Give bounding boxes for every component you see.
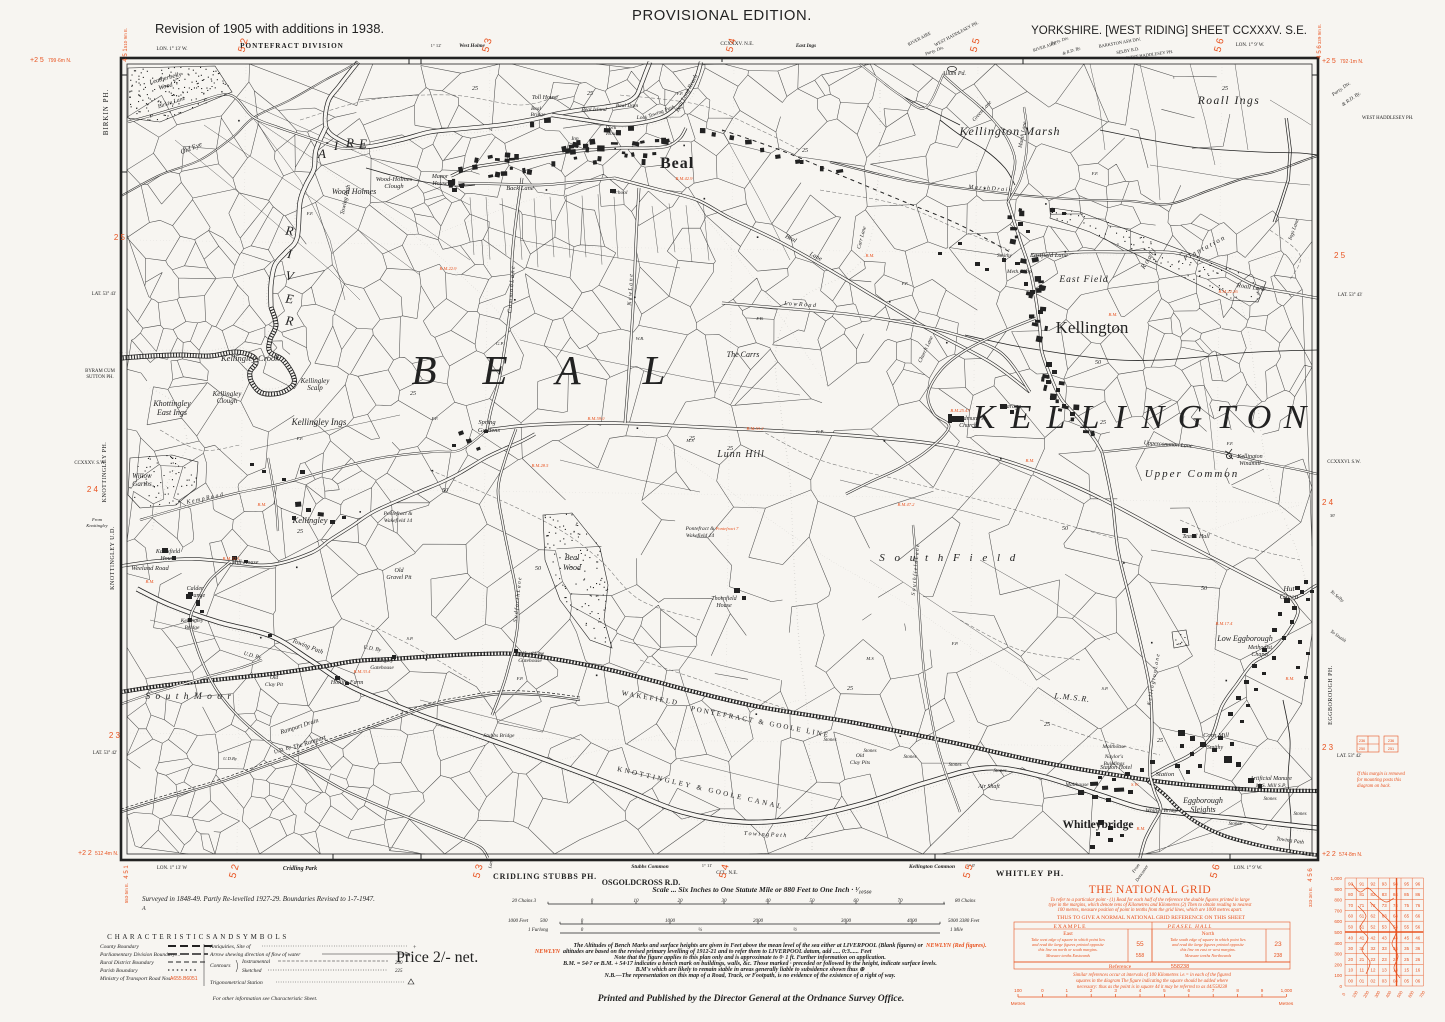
svg-text:Wakefield 14: Wakefield 14 xyxy=(686,532,715,539)
svg-text:1000 Feet: 1000 Feet xyxy=(508,919,529,924)
svg-text:B.M.17.4: B.M.17.4 xyxy=(1216,621,1234,626)
svg-text:75: 75 xyxy=(1404,903,1409,908)
svg-text:20 Chains 3: 20 Chains 3 xyxy=(512,899,537,904)
svg-text:Arrow shewing direction of flo: Arrow shewing direction of flow of water xyxy=(209,951,301,958)
svg-text:236: 236 xyxy=(1359,739,1365,743)
svg-text:LON. 1° 13' W: LON. 1° 13' W xyxy=(157,866,188,871)
svg-text:B.M.: B.M. xyxy=(1286,676,1295,681)
svg-text:East Ings: East Ings xyxy=(156,408,187,417)
svg-text:238: 238 xyxy=(1274,953,1283,959)
svg-text:N: N xyxy=(1283,399,1309,436)
svg-text:06: 06 xyxy=(1415,979,1420,984)
svg-text:LON. 1° 13' W.: LON. 1° 13' W. xyxy=(156,47,187,52)
svg-text:333·3m E.: 333·3m E. xyxy=(1308,887,1313,907)
svg-text:Wood: Wood xyxy=(563,563,582,572)
svg-text:Stones: Stones xyxy=(1228,822,1241,827)
svg-text:25: 25 xyxy=(587,91,593,97)
svg-text:558238: 558238 xyxy=(1171,964,1189,970)
svg-text:600: 600 xyxy=(1334,919,1342,924)
svg-text:+2 5: +2 5 xyxy=(1322,58,1336,65)
svg-text:Bridge: Bridge xyxy=(531,112,547,118)
svg-text:Sleights: Sleights xyxy=(1190,805,1215,814)
svg-text:Stubbs Common: Stubbs Common xyxy=(631,864,668,870)
svg-text:04: 04 xyxy=(1393,979,1398,984)
svg-text:diagram on back.: diagram on back. xyxy=(1357,784,1391,789)
svg-text:C H A R A C T E R I S T I C S: C H A R A C T E R I S T I C S A N D S Y … xyxy=(107,933,287,941)
svg-text:76: 76 xyxy=(1415,903,1420,908)
svg-text:3000: 3000 xyxy=(841,919,852,924)
svg-text:22: 22 xyxy=(1371,957,1376,962)
svg-text:F.F.: F.F. xyxy=(1226,441,1234,446)
svg-text:Clay Pits: Clay Pits xyxy=(850,760,870,766)
svg-text:85: 85 xyxy=(1404,892,1409,897)
svg-text:700: 700 xyxy=(1334,908,1342,913)
svg-text:S.P.: S.P. xyxy=(407,636,414,641)
svg-text:Khottingley: Khottingley xyxy=(152,399,191,408)
svg-text:L: L xyxy=(1046,399,1066,436)
svg-text:9: 9 xyxy=(1261,988,1264,993)
svg-text:Whitleybridge: Whitleybridge xyxy=(1063,819,1134,831)
svg-text:33: 33 xyxy=(1382,946,1387,951)
svg-text:25: 25 xyxy=(1404,957,1409,962)
svg-text:G: G xyxy=(1178,399,1203,436)
svg-text:+2 5: +2 5 xyxy=(30,57,44,64)
svg-text:Stones: Stones xyxy=(823,738,836,743)
svg-text:St. Edmund's: St. Edmund's xyxy=(952,416,984,422)
svg-text:00: 00 xyxy=(1348,979,1353,984)
svg-text:71: 71 xyxy=(1359,903,1364,908)
svg-text:Pontefract &: Pontefract & xyxy=(383,510,414,517)
svg-text:2: 2 xyxy=(1090,988,1093,993)
svg-text:for mounting posts this: for mounting posts this xyxy=(1357,778,1401,783)
svg-text:95: 95 xyxy=(1404,881,1409,886)
svg-text:13: 13 xyxy=(1382,968,1387,973)
svg-text:PROVISIONAL EDITION.: PROVISIONAL EDITION. xyxy=(632,8,812,24)
svg-text:Gatehouse: Gatehouse xyxy=(518,658,542,664)
svg-text:N: N xyxy=(1141,399,1167,436)
svg-text:M.S: M.S xyxy=(865,656,874,661)
svg-text:Lunn Hill: Lunn Hill xyxy=(716,449,765,460)
svg-text:Kellington: Kellington xyxy=(1056,318,1129,337)
svg-text:Church: Church xyxy=(959,423,977,429)
svg-text:50: 50 xyxy=(810,899,816,904)
svg-text:65: 65 xyxy=(1404,914,1409,919)
svg-text:56: 56 xyxy=(1415,925,1420,930)
svg-text:Vicarage: Vicarage xyxy=(999,404,1021,410)
svg-text:Sudforthlane: Sudforthlane xyxy=(516,650,545,657)
svg-text:2 3: 2 3 xyxy=(1322,743,1334,752)
svg-text:74: 74 xyxy=(1393,903,1398,908)
svg-text:Bridge: Bridge xyxy=(185,625,201,631)
svg-text:26: 26 xyxy=(1415,957,1420,962)
svg-text:F.F.: F.F. xyxy=(306,211,314,216)
svg-text:CCXXXV. S.W.: CCXXXV. S.W. xyxy=(74,461,105,466)
svg-text:Parish Boundary: Parish Boundary xyxy=(99,968,138,974)
svg-text:70: 70 xyxy=(898,899,904,904)
svg-text:I: I xyxy=(1113,399,1127,436)
svg-text:East Ings: East Ings xyxy=(795,43,816,49)
svg-text:Beal: Beal xyxy=(660,155,694,172)
svg-text:50: 50 xyxy=(1062,526,1068,532)
svg-text:BYRAM CUM: BYRAM CUM xyxy=(85,369,115,374)
svg-text:T: T xyxy=(1217,399,1238,436)
svg-text:B.M.: B.M. xyxy=(866,253,875,258)
svg-text:40: 40 xyxy=(766,899,772,904)
svg-text:Kellingley: Kellingley xyxy=(292,515,328,525)
svg-text:Air Shaft: Air Shaft xyxy=(977,783,1000,790)
svg-text:Stones: Stones xyxy=(993,769,1006,774)
svg-text:25: 25 xyxy=(1157,738,1163,744)
svg-text:B.M.33.4: B.M.33.4 xyxy=(354,669,372,674)
svg-text:2 3: 2 3 xyxy=(109,731,121,740)
svg-text:30: 30 xyxy=(1348,946,1353,951)
svg-text:Beal: Beal xyxy=(565,553,580,562)
svg-text:792·1m N.: 792·1m N. xyxy=(1340,59,1363,65)
svg-text:0: 0 xyxy=(1041,988,1044,993)
svg-text:Corn Mill: Corn Mill xyxy=(1203,732,1229,739)
svg-text:B.M.: B.M. xyxy=(1109,312,1118,317)
svg-text:86: 86 xyxy=(1415,892,1420,897)
svg-text:Kellingley Crook: Kellingley Crook xyxy=(220,353,279,363)
svg-text:LAT. 53° 43': LAT. 53° 43' xyxy=(92,292,117,297)
svg-text:S o u t h M o o r: S o u t h M o o r xyxy=(145,692,232,702)
svg-text:NEWLYN: NEWLYN xyxy=(534,949,561,955)
svg-text:Artificial Manure: Artificial Manure xyxy=(1249,775,1292,782)
svg-text:B.M.42.9: B.M.42.9 xyxy=(676,176,694,181)
svg-text:61: 61 xyxy=(1359,914,1364,919)
svg-text:Stones: Stones xyxy=(863,749,876,754)
svg-text:Willow: Willow xyxy=(132,472,152,480)
svg-text:Price 2/- net.: Price 2/- net. xyxy=(396,949,478,966)
svg-text:B.M.22.9: B.M.22.9 xyxy=(440,266,458,271)
svg-text:100 metres, measure position o: 100 metres, measure position of point in… xyxy=(1058,908,1243,913)
svg-text:East Field: East Field xyxy=(1058,275,1108,285)
svg-text:236: 236 xyxy=(1388,739,1394,743)
svg-text:41: 41 xyxy=(1359,935,1364,940)
svg-text:CRIDLING STUBBS PH.: CRIDLING STUBBS PH. xyxy=(493,872,597,881)
svg-text:23: 23 xyxy=(1274,941,1282,948)
svg-text:Metres: Metres xyxy=(1279,1001,1294,1007)
svg-text:10: 10 xyxy=(1348,968,1353,973)
svg-text:Measure tenths Northwards: Measure tenths Northwards xyxy=(1184,953,1232,958)
svg-text:Old: Old xyxy=(270,675,279,681)
svg-text:½: ½ xyxy=(793,928,797,933)
svg-text:Revision of 1905 with addition: Revision of 1905 with additions in 1938. xyxy=(155,21,384,36)
svg-text:U.D.By: U.D.By xyxy=(223,756,238,761)
svg-text:Roall Ings: Roall Ings xyxy=(1197,95,1261,107)
svg-text:Thornfield: Thornfield xyxy=(711,595,737,602)
svg-text:A: A xyxy=(552,347,581,393)
svg-text:73: 73 xyxy=(1382,903,1387,908)
svg-text:PONTEFRACT DIVISION: PONTEFRACT DIVISION xyxy=(240,42,344,50)
svg-text:Lock: Lock xyxy=(636,115,648,121)
svg-text:A655.B6051: A655.B6051 xyxy=(170,976,198,982)
svg-text:100: 100 xyxy=(1014,988,1022,993)
svg-text:25: 25 xyxy=(1044,722,1050,728)
svg-text:30: 30 xyxy=(722,899,728,904)
svg-text:52: 52 xyxy=(1371,925,1376,930)
svg-text:Spring: Spring xyxy=(478,419,496,426)
svg-text:SUTTON PH.: SUTTON PH. xyxy=(86,375,113,380)
svg-text:KNOTTINGLEY PH.: KNOTTINGLEY PH. xyxy=(102,442,108,503)
svg-text:4 5 6: 4 5 6 xyxy=(1308,868,1314,882)
svg-text:50: 50 xyxy=(1095,360,1101,366)
svg-text:If this margin is removed: If this margin is removed xyxy=(1356,772,1405,777)
svg-text:NEWLYN (Red figures).: NEWLYN (Red figures). xyxy=(925,942,987,949)
svg-text:1,000: 1,000 xyxy=(1281,988,1293,993)
svg-text:B.M.: B.M. xyxy=(146,579,155,584)
svg-text:The Altitudes of Bench Marks a: The Altitudes of Bench Marks and surface… xyxy=(573,942,923,949)
svg-text:25: 25 xyxy=(802,148,808,154)
svg-text:F.F.: F.F. xyxy=(431,416,439,421)
svg-text:Clough: Clough xyxy=(384,183,403,190)
svg-text:Kellingley Ings: Kellingley Ings xyxy=(291,417,347,427)
svg-text:5000 3380 Feet: 5000 3380 Feet xyxy=(948,919,980,924)
svg-text:N.B.—The representation on thi: N.B.—The representation on this map of a… xyxy=(603,973,896,979)
svg-text:Whitley Bridge: Whitley Bridge xyxy=(1145,808,1179,814)
svg-text:60: 60 xyxy=(854,899,860,904)
svg-text:Weeland Road: Weeland Road xyxy=(131,565,169,572)
svg-text:Calder: Calder xyxy=(187,586,204,592)
svg-text:Trigonometrical Station: Trigonometrical Station xyxy=(210,980,263,986)
svg-text:F.B.: F.B. xyxy=(755,316,763,321)
svg-text:40: 40 xyxy=(1348,935,1353,940)
svg-text:G.P.: G.P. xyxy=(496,341,504,346)
svg-text:Instrumental: Instrumental xyxy=(241,959,271,965)
svg-text:B.M.53.2: B.M.53.2 xyxy=(747,426,765,431)
svg-text:B.M.47.2: B.M.47.2 xyxy=(898,502,916,507)
svg-text:900: 900 xyxy=(1334,887,1342,892)
svg-text:Parliamentary Division Boundar: Parliamentary Division Boundary.... xyxy=(99,952,180,958)
svg-text:25: 25 xyxy=(1100,420,1106,426)
svg-text:Pontefract 7: Pontefract 7 xyxy=(715,526,740,531)
svg-text:10: 10 xyxy=(634,899,640,904)
svg-text:1000: 1000 xyxy=(665,919,676,924)
svg-text:15: 15 xyxy=(1404,968,1409,973)
svg-text:Smithy: Smithy xyxy=(997,253,1013,259)
svg-text:S.P.: S.P. xyxy=(1102,686,1109,691)
svg-text:LAT. 53° 43': LAT. 53° 43' xyxy=(1338,293,1363,298)
svg-text:Kellingley: Kellingley xyxy=(370,658,394,664)
svg-text:Wood Holmes: Wood Holmes xyxy=(332,187,376,196)
svg-text:36: 36 xyxy=(1415,946,1420,951)
svg-text:BIRKIN PH.: BIRKIN PH. xyxy=(102,89,110,136)
svg-text:Beal Dam: Beal Dam xyxy=(616,103,638,109)
svg-text:62: 62 xyxy=(1371,914,1376,919)
svg-text:Chapel: Chapel xyxy=(1251,652,1269,658)
svg-text:400: 400 xyxy=(1334,941,1342,946)
svg-text:50: 50 xyxy=(1201,586,1207,592)
svg-text:4 5 1: 4 5 1 xyxy=(124,865,130,879)
svg-text:Old: Old xyxy=(395,568,405,574)
svg-text:Knottingley: Knottingley xyxy=(85,523,108,528)
svg-text:251: 251 xyxy=(1388,747,1394,751)
svg-text:250: 250 xyxy=(1359,747,1365,751)
svg-text:House: House xyxy=(431,181,448,187)
svg-text:Manor: Manor xyxy=(431,174,449,180)
svg-text:2 4: 2 4 xyxy=(1322,498,1334,507)
svg-text:81: 81 xyxy=(1359,892,1364,897)
svg-text:25: 25 xyxy=(410,391,416,397)
svg-text:Eastfield Lane: Eastfield Lane xyxy=(1029,252,1068,259)
svg-text:50: 50 xyxy=(1348,925,1353,930)
svg-text:3: 3 xyxy=(1114,988,1117,993)
svg-text:574·8m N.: 574·8m N. xyxy=(1339,852,1362,858)
svg-text:From: From xyxy=(91,517,103,522)
svg-text:25: 25 xyxy=(727,446,733,452)
svg-text:45: 45 xyxy=(1404,935,1409,940)
svg-text:Stubbs Bridge: Stubbs Bridge xyxy=(483,733,515,739)
svg-text:553·5m E.: 553·5m E. xyxy=(124,883,129,903)
svg-text:+2 2: +2 2 xyxy=(1322,851,1336,858)
svg-text:Hollins Farm: Hollins Farm xyxy=(330,680,364,686)
svg-text:B.M.25.43: B.M.25.43 xyxy=(950,408,970,413)
svg-text:Station: Station xyxy=(1156,771,1174,778)
svg-text:B.M.: B.M. xyxy=(1137,826,1146,831)
svg-text:Windmill: Windmill xyxy=(1239,461,1261,467)
svg-text:500: 500 xyxy=(1334,930,1342,935)
svg-text:50: 50 xyxy=(535,566,541,572)
svg-text:Kellingley: Kellingley xyxy=(180,618,204,624)
svg-text:Garths: Garths xyxy=(132,480,152,488)
svg-text:Rural District Boundary: Rural District Boundary xyxy=(99,960,154,966)
svg-text:F.F.: F.F. xyxy=(676,91,684,96)
svg-text:Kellington: Kellington xyxy=(1236,454,1262,460)
svg-text:Teasel Hall: Teasel Hall xyxy=(1182,534,1210,540)
svg-text:Toll House: Toll House xyxy=(532,95,558,101)
svg-text:20: 20 xyxy=(678,899,684,904)
svg-text:Antiquities, Site of: Antiquities, Site of xyxy=(209,943,252,950)
svg-text:Stones: Stones xyxy=(903,755,916,760)
svg-text:2 5: 2 5 xyxy=(114,233,126,242)
svg-text:Scale ... Six Inches to One St: Scale ... Six Inches to One Statute Mile… xyxy=(652,885,872,894)
svg-text:E: E xyxy=(481,347,507,393)
svg-text:83: 83 xyxy=(1382,892,1387,897)
svg-text:339·9m E.: 339·9m E. xyxy=(1317,24,1322,44)
svg-text:4 5 6: 4 5 6 xyxy=(1317,45,1323,59)
svg-text:55: 55 xyxy=(1136,941,1144,948)
svg-text:B.M.32.5: B.M.32.5 xyxy=(223,556,241,561)
svg-text:F.P.: F.P. xyxy=(951,641,959,646)
svg-text:96: 96 xyxy=(1415,881,1420,886)
svg-text:S.W.: S.W. xyxy=(1131,782,1139,787)
svg-text:House: House xyxy=(159,556,176,562)
svg-text:THE NATIONAL GRID: THE NATIONAL GRID xyxy=(1089,884,1211,896)
svg-text:4: 4 xyxy=(1139,988,1142,993)
svg-text:64: 64 xyxy=(1393,914,1398,919)
svg-text:2 5: 2 5 xyxy=(1334,251,1346,260)
svg-text:225: 225 xyxy=(395,969,403,974)
svg-text:LAT. 53° 42': LAT. 53° 42' xyxy=(1337,754,1362,759)
svg-text:PEASEL HALL: PEASEL HALL xyxy=(1167,924,1213,930)
svg-text:squares in the diagram The f: squares in the diagram The figure indica… xyxy=(1076,979,1229,984)
svg-text:1,000: 1,000 xyxy=(1331,876,1343,881)
svg-text:Malthouse: Malthouse xyxy=(1101,744,1126,750)
svg-text:KNOTTINGLEY U.D.: KNOTTINGLEY U.D. xyxy=(110,526,116,590)
svg-text:Green: Green xyxy=(1280,592,1299,601)
svg-text:County Boundary: County Boundary xyxy=(100,944,140,950)
svg-text:12: 12 xyxy=(1371,968,1376,973)
svg-text:200: 200 xyxy=(1334,962,1342,967)
svg-text:50: 50 xyxy=(442,488,448,494)
svg-text:Clay Pit: Clay Pit xyxy=(265,682,284,688)
svg-text:Meth.Chap.: Meth.Chap. xyxy=(1006,269,1033,275)
svg-text:S o u t h F i e l d: S o u t h F i e l d xyxy=(879,552,1019,564)
svg-text:21: 21 xyxy=(1359,957,1364,962)
svg-text:30': 30' xyxy=(1330,513,1335,518)
svg-text:Pontefract &: Pontefract & xyxy=(685,525,716,532)
svg-text:House: House xyxy=(715,603,732,609)
svg-text:32: 32 xyxy=(1371,946,1376,951)
svg-text:+2 2: +2 2 xyxy=(78,850,92,857)
svg-text:YORKSHIRE. [WEST RIDING] S: YORKSHIRE. [WEST RIDING] SHEET CCXXXV. S… xyxy=(1031,25,1307,37)
svg-text:Reference: Reference xyxy=(1109,963,1132,970)
svg-text:66: 66 xyxy=(1415,914,1420,919)
svg-text:20: 20 xyxy=(1348,957,1353,962)
svg-text:School: School xyxy=(613,190,628,196)
svg-text:Wakefield 14: Wakefield 14 xyxy=(384,517,413,524)
svg-text:Allum Pd.: Allum Pd. xyxy=(941,71,966,77)
svg-text:92: 92 xyxy=(1371,881,1376,886)
svg-text:B: B xyxy=(411,347,436,393)
svg-text:558: 558 xyxy=(1136,953,1145,959)
svg-text:0: 0 xyxy=(1339,984,1342,989)
svg-text:Buildings: Buildings xyxy=(1103,761,1124,767)
svg-text:Low Eggborough: Low Eggborough xyxy=(1216,634,1273,643)
svg-text:this line on north or south ma: this line on north or south margins. xyxy=(1038,947,1097,952)
svg-text:M.S: M.S xyxy=(685,438,694,443)
svg-text:Kellington Marsh: Kellington Marsh xyxy=(958,124,1060,138)
svg-text:Methodist: Methodist xyxy=(1247,645,1272,651)
svg-text:this line on east or west marg: this line on east or west margins. xyxy=(1180,947,1235,952)
svg-text:03: 03 xyxy=(1382,979,1387,984)
svg-text:Gardens: Gardens xyxy=(478,427,501,434)
svg-text:84: 84 xyxy=(1393,892,1398,897)
svg-text:46: 46 xyxy=(1415,935,1420,940)
svg-text:25: 25 xyxy=(472,86,478,92)
svg-text:¼: ¼ xyxy=(698,928,702,933)
svg-text:Measure tenths Eastwards: Measure tenths Eastwards xyxy=(1045,953,1090,958)
svg-text:Eggborough: Eggborough xyxy=(1182,796,1223,805)
svg-text:94: 94 xyxy=(1393,881,1398,886)
svg-text:11: 11 xyxy=(1360,968,1365,973)
svg-text:LAT. 53° 42': LAT. 53° 42' xyxy=(93,751,118,756)
svg-text:90: 90 xyxy=(1348,881,1353,886)
svg-text:4 5 1: 4 5 1 xyxy=(123,48,129,62)
svg-text:M.S. Mill S.P.: M.S. Mill S.P. xyxy=(1255,783,1286,789)
svg-text:Ministry of Transport Road Nos: Ministry of Transport Road Nos. xyxy=(99,975,172,982)
svg-text:800: 800 xyxy=(1334,898,1342,903)
svg-text:Contours: Contours xyxy=(210,963,230,969)
svg-text:THUS TO GIVE A NORMAL NAT: THUS TO GIVE A NORMAL NATIONAL GRID REFE… xyxy=(1057,915,1246,921)
svg-text:25: 25 xyxy=(847,686,853,692)
svg-text:25: 25 xyxy=(1222,86,1228,92)
svg-text:2 4: 2 4 xyxy=(87,485,99,494)
svg-text:Inn: Inn xyxy=(570,136,579,142)
svg-text:01: 01 xyxy=(1359,979,1364,984)
svg-text:799·6m N.: 799·6m N. xyxy=(48,58,71,64)
svg-text:Metres: Metres xyxy=(1011,1001,1026,1007)
svg-text:8: 8 xyxy=(1236,988,1239,993)
svg-text:05: 05 xyxy=(1404,979,1409,984)
svg-text:WEST HADDLESEY PH.: WEST HADDLESEY PH. xyxy=(1362,116,1413,121)
svg-text:R: R xyxy=(345,135,354,150)
svg-text:93: 93 xyxy=(1382,881,1387,886)
svg-text:B.M.59.0: B.M.59.0 xyxy=(588,416,606,421)
svg-text:F.F.: F.F. xyxy=(1091,171,1099,176)
svg-text:6: 6 xyxy=(1188,988,1191,993)
svg-text:For other information see Char: For other information see Characteristic… xyxy=(212,995,318,1002)
